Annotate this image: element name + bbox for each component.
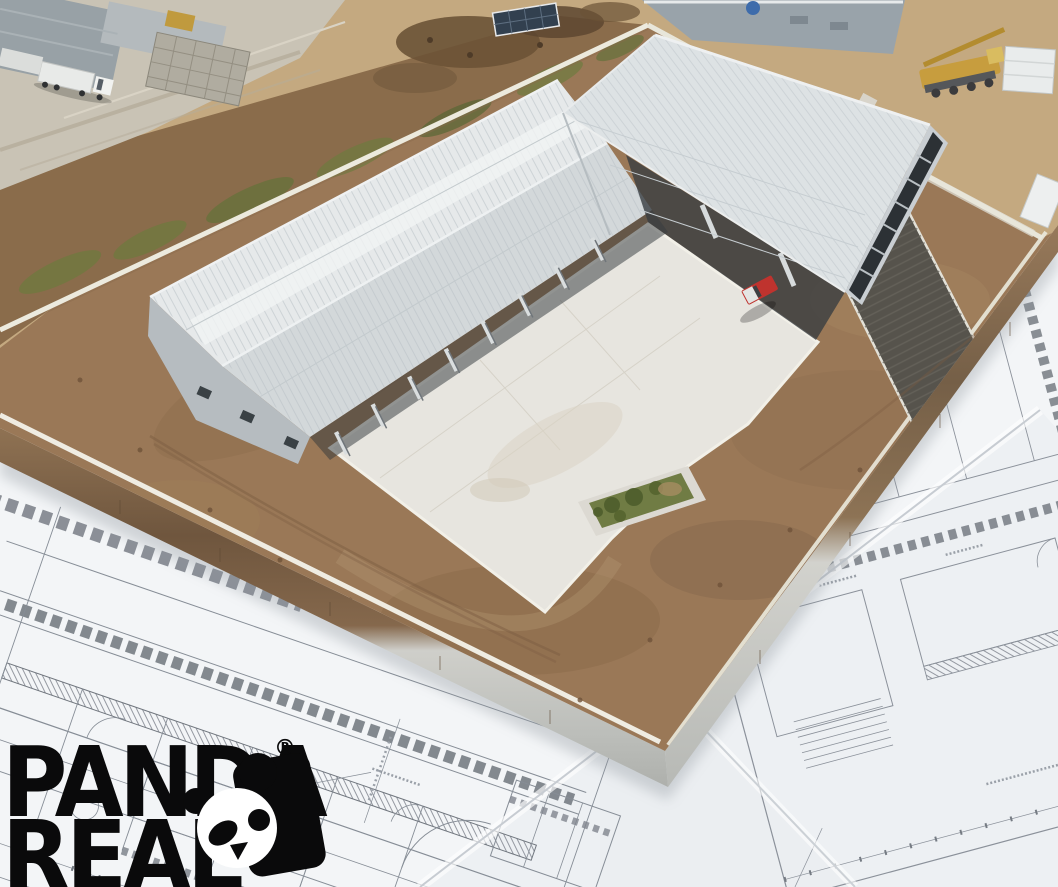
site-trailer — [1003, 46, 1056, 93]
brand-logo: PANDA ® REAL — [0, 732, 320, 887]
panda-eye-right — [248, 809, 270, 831]
panda-face-icon — [0, 732, 320, 887]
blue-tank — [746, 1, 760, 15]
panda-ear-right — [239, 753, 277, 791]
poster-canvas: PANDA ® REAL — [0, 0, 1058, 887]
